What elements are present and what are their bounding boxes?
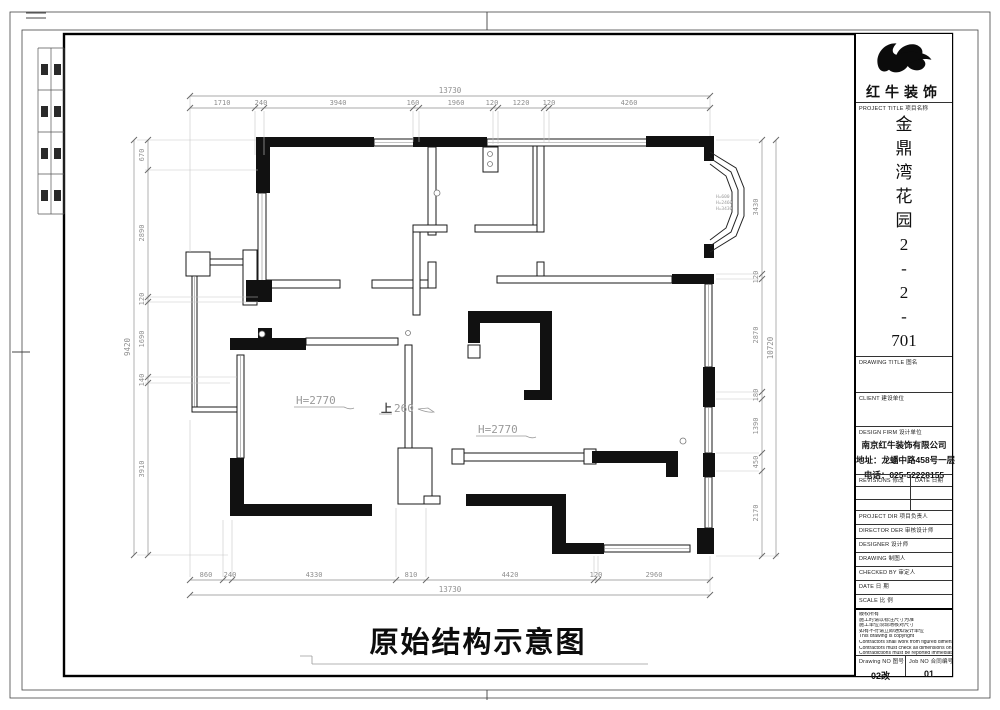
bay-note-line1: H=600 <box>716 194 730 200</box>
design-firm-label: DESIGN FIRM 设计单位 <box>856 427 952 436</box>
firm-name: 南京红牛装饰有限公司 <box>856 439 952 451</box>
job-no-value: 01 <box>906 669 952 679</box>
drawing-no-label: Drawing NO 图号 <box>856 656 905 665</box>
project-dir-row: PROJECT DIR 项目负责人 <box>856 510 952 524</box>
dim-right-4: 1390 <box>752 418 760 435</box>
scale-row: SCALE 比 例 <box>856 594 952 608</box>
structural-walls <box>230 136 715 554</box>
dim-bottom-1: 240 <box>224 571 237 579</box>
dim-left-overall: 9420 <box>123 337 132 356</box>
project-name-char: 2 <box>856 233 952 257</box>
caption-title: 原始结构示意图 <box>369 625 586 659</box>
dim-top-6: 1220 <box>513 99 530 107</box>
project-name-char: 2 <box>856 281 952 305</box>
drawing-title-label: DRAWING TITLE 图名 <box>856 356 952 392</box>
project-name-char: 701 <box>856 329 952 353</box>
dim-right-6: 2170 <box>752 505 760 522</box>
design-firm-cell: DESIGN FIRM 设计单位 南京红牛装饰有限公司 地址：龙蟠中路458号一… <box>856 426 952 474</box>
ceiling-height-label-right: H=2770 <box>478 423 518 436</box>
drawing-row: DRAWING 制图人 <box>856 552 952 566</box>
checked-by-row: CHECKED BY 审定人 <box>856 566 952 580</box>
dim-top-3: 160 <box>407 99 420 107</box>
revisions-grid <box>856 486 952 510</box>
designer-row: DESIGNER 设计师 <box>856 538 952 552</box>
date-row: DATE 日 期 <box>856 580 952 594</box>
signature-strip <box>38 48 64 214</box>
job-no-label: Job NO 合同编号 <box>906 656 952 665</box>
dim-bottom-6: 2960 <box>646 571 663 579</box>
project-name-char: 金 <box>856 113 952 137</box>
project-name-char: 园 <box>856 209 952 233</box>
project-title-label: PROJECT TITLE 项目名称 <box>856 102 952 113</box>
step-up-value: 260 <box>394 402 414 415</box>
copyright-notes: 版权所有 施工时请以标注尺寸为准 施工单位须现场核对尺寸 如有不符请立即通知设计… <box>856 608 952 655</box>
project-name-vertical: 金 鼎 湾 花 园 2 - 2 - 701 <box>856 113 952 356</box>
drawing-no-cell: Drawing NO 图号 02改 <box>856 656 906 676</box>
project-name-char: 鼎 <box>856 137 952 161</box>
firm-address: 地址：龙蟠中路458号一层 <box>856 454 952 466</box>
dim-right-5: 450 <box>752 456 760 469</box>
dim-top-0: 1710 <box>214 99 231 107</box>
drawing-caption: 原始结构示意图 <box>300 625 648 664</box>
dim-right-3: 180 <box>752 389 760 402</box>
dim-bottom-3: 810 <box>405 571 418 579</box>
dim-top-4: 1960 <box>448 99 465 107</box>
floor-plan: H=2770 H=2770 上 260 H=600 H=2460 H=3430 … <box>123 86 779 598</box>
drawing-no-value: 02改 <box>856 669 905 682</box>
dim-left-2: 120 <box>138 293 146 306</box>
dim-bottom-4: 4420 <box>502 571 519 579</box>
brand-name: 红牛装饰 <box>856 82 952 102</box>
job-no-cell: Job NO 合同编号 01 <box>906 656 952 676</box>
logo-cell: 红牛装饰 <box>856 34 952 102</box>
director-row: DIRECTOR DER 审核设计师 <box>856 524 952 538</box>
dim-bottom-0: 860 <box>200 571 213 579</box>
dim-bottom-overall: 13730 <box>439 585 462 594</box>
sheet-borders <box>10 12 990 700</box>
ceiling-height-label-left: H=2770 <box>296 394 336 407</box>
revisions-grid-line <box>856 499 952 500</box>
date-col-label: DATE 日期 <box>912 475 943 484</box>
dim-left-1: 2890 <box>138 225 146 242</box>
dim-top-1: 240 <box>255 99 268 107</box>
dim-top-7: 120 <box>543 99 556 107</box>
title-block: 红牛装饰 PROJECT TITLE 项目名称 金 鼎 湾 花 园 2 - 2 … <box>854 34 952 676</box>
bay-note-line3: H=3430 <box>716 206 733 212</box>
dim-left-4: 140 <box>138 374 146 387</box>
project-name-char: - <box>856 257 952 281</box>
dim-top-2: 3940 <box>330 99 347 107</box>
dim-left-0: 670 <box>138 149 146 162</box>
drawing-sheet: H=2770 H=2770 上 260 H=600 H=2460 H=3430 … <box>0 0 1000 710</box>
dim-left-5: 3910 <box>138 461 146 478</box>
dim-right-2: 2870 <box>752 327 760 344</box>
bay-note-line2: H=2460 <box>716 200 733 206</box>
project-name-char: 花 <box>856 185 952 209</box>
revisions-header: REVISIONS 修改 DATE 日期 <box>856 474 952 486</box>
dim-bottom-2: 4330 <box>306 571 323 579</box>
dim-top-8: 4260 <box>621 99 638 107</box>
dim-left-3: 1690 <box>138 331 146 348</box>
dim-right-1: 120 <box>752 271 760 284</box>
project-name-char: - <box>856 305 952 329</box>
step-up-word: 上 <box>381 401 392 415</box>
dim-top-overall: 13730 <box>439 86 462 95</box>
dim-right-0: 3430 <box>752 199 760 216</box>
registration-marks <box>12 12 487 700</box>
dim-top-5: 120 <box>486 99 499 107</box>
client-label: CLIENT 建设单位 <box>856 392 952 426</box>
dim-right-overall: 10720 <box>766 336 775 359</box>
floor-plan-canvas: H=2770 H=2770 上 260 H=600 H=2460 H=3430 … <box>0 0 1000 710</box>
dim-bottom-5: 120 <box>590 571 603 579</box>
number-cells: Drawing NO 图号 02改 Job NO 合同编号 01 <box>856 655 952 676</box>
revisions-label: REVISIONS 修改 <box>856 475 911 486</box>
project-name-char: 湾 <box>856 161 952 185</box>
bull-logo-icon <box>872 36 936 76</box>
